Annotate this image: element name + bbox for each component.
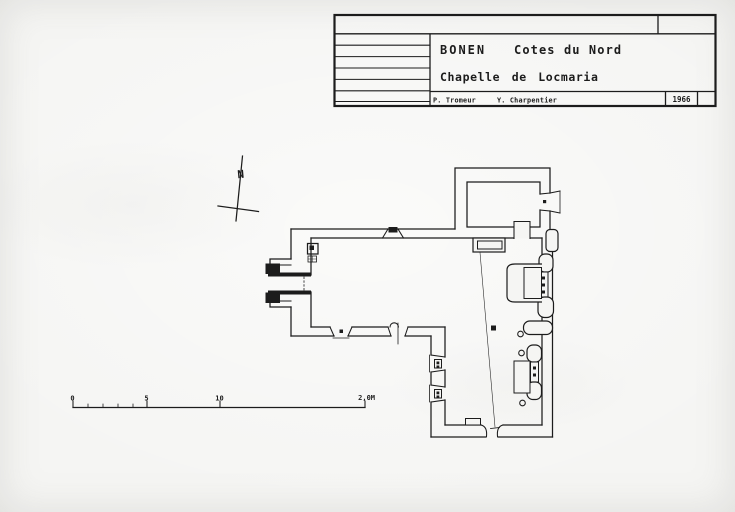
- wing-west-window-1-mullion-a: [437, 362, 440, 365]
- north-needle: [236, 156, 243, 221]
- author-2-label: Y. Charpentier: [497, 97, 557, 105]
- scanned-plan-page: BONEN Cotes du Nord Chapelle de Locmaria…: [0, 0, 735, 512]
- scale-label-0: 0: [70, 395, 74, 403]
- sacristy: [455, 168, 560, 239]
- font-grid-lines: [308, 256, 317, 262]
- wing-east-window-mullion-box: [531, 362, 539, 382]
- nave-south-wall: [291, 327, 445, 336]
- year-label: 1966: [672, 95, 691, 104]
- east-window-mullion-1: [542, 277, 545, 280]
- title-block-left-panel-rows: [336, 45, 430, 101]
- north-arrow: N: [218, 156, 259, 221]
- section-axis: [480, 253, 495, 428]
- wing-west-window-1-mullion-b: [437, 366, 440, 369]
- scale-label-10: 10: [215, 395, 223, 403]
- commune-label: BONEN: [440, 43, 486, 57]
- chancel-wing-respond: [524, 321, 553, 335]
- east-window-mullion-3: [542, 291, 545, 294]
- wing-altar: [514, 361, 530, 393]
- floor-plan: [266, 168, 561, 437]
- porch-passage-wall-north: [268, 273, 311, 277]
- north-fitting-inner: [478, 241, 503, 249]
- title-block-top-band: [335, 15, 716, 34]
- column-base-3: [520, 400, 526, 406]
- wing-south-door-reveals: [481, 425, 503, 437]
- wing-east-window-pier-north: [527, 345, 542, 362]
- north-crossbar: [218, 206, 259, 212]
- south-bench: [466, 419, 481, 426]
- north-east-buttress: [546, 230, 558, 252]
- north-letter: N: [237, 168, 245, 182]
- wing-west-window-2-mullion-a: [437, 392, 440, 395]
- architectural-drawing: BONEN Cotes du Nord Chapelle de Locmaria…: [0, 0, 735, 512]
- axis-line: [480, 253, 500, 429]
- sacristy-door-mask: [514, 222, 530, 239]
- title-block: BONEN Cotes du Nord Chapelle de Locmaria…: [335, 15, 716, 106]
- wing-west-window-2-mullion-b: [437, 396, 440, 399]
- north-window-opening: [389, 227, 398, 233]
- nave-north-wall: [291, 229, 542, 238]
- wing-south-wall: [431, 425, 553, 437]
- scale-bar: 0 5 10 2,0M: [70, 394, 375, 408]
- porch-passage-wall-south: [268, 291, 311, 295]
- high-altar-table: [524, 268, 542, 299]
- wing-east-window-mullion-1: [533, 367, 536, 370]
- wing-west-wall: [431, 327, 445, 437]
- wing-east-window-mullion-2: [533, 374, 536, 377]
- column-base-2: [519, 350, 525, 356]
- south-door-arc: [390, 323, 398, 327]
- sacristy-outer-wall: [455, 168, 550, 229]
- department-label: Cotes du Nord: [514, 43, 622, 57]
- axis-section-marker: [491, 326, 496, 331]
- scale-label-20m: 2,0M: [358, 394, 375, 402]
- scale-label-5: 5: [144, 395, 148, 403]
- east-window-mullion-2: [542, 284, 545, 287]
- west-porch: [266, 259, 312, 307]
- porch-north-jamb: [266, 264, 281, 275]
- monument-label: Chapelle de Locmaria: [440, 70, 598, 84]
- baptismal-font-fill: [310, 246, 315, 251]
- east-wall: [524, 230, 559, 438]
- sacristy-window-mullion: [543, 200, 546, 203]
- column-base-1: [518, 331, 524, 337]
- author-1-label: P. Tromeur: [433, 97, 476, 105]
- south-window-mullion: [340, 330, 344, 334]
- sacristy-inner-wall: [467, 182, 540, 227]
